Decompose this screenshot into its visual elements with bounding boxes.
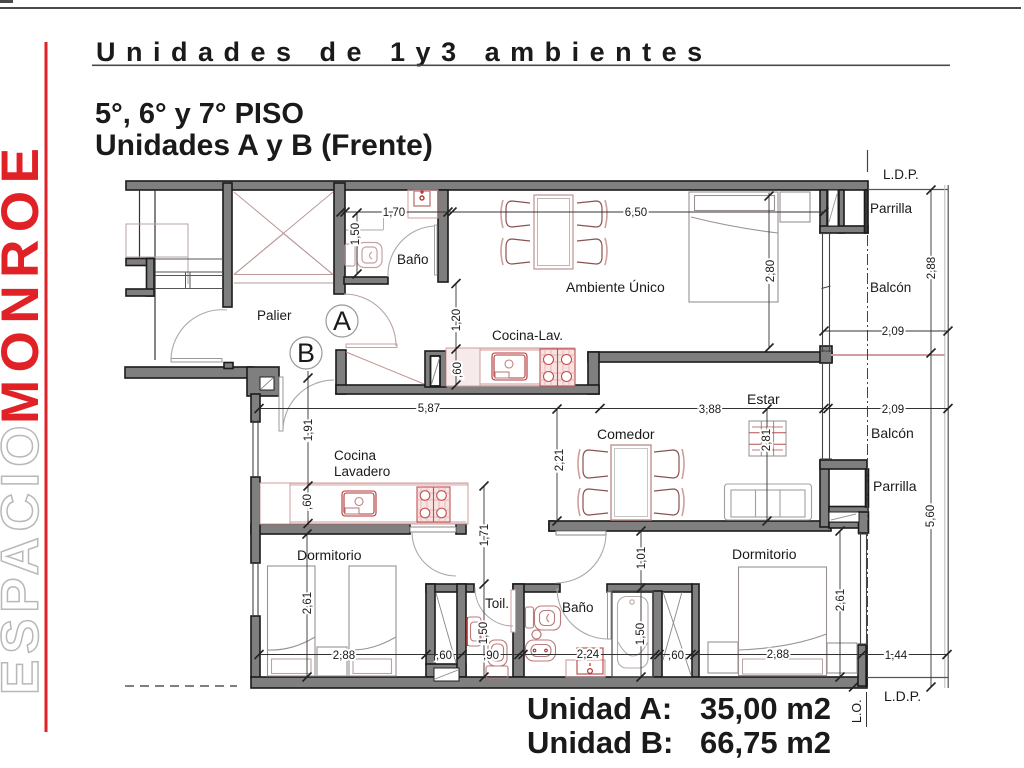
svg-text:L.D.P.: L.D.P. xyxy=(884,688,921,704)
svg-text:2,81: 2,81 xyxy=(761,429,773,451)
svg-text:3,88: 3,88 xyxy=(699,404,721,416)
svg-text:Toil.: Toil. xyxy=(485,596,509,611)
svg-text:L.O.: L.O. xyxy=(850,699,864,723)
svg-text:Palier: Palier xyxy=(257,308,292,323)
svg-text:Unidad A:: Unidad A: xyxy=(527,691,672,726)
svg-text:Estar: Estar xyxy=(747,391,780,407)
svg-text:2,88: 2,88 xyxy=(767,649,789,661)
svg-text:1,91: 1,91 xyxy=(303,419,315,441)
svg-text:2,88: 2,88 xyxy=(333,650,355,662)
svg-text:1,50: 1,50 xyxy=(478,622,490,644)
svg-text:1,50: 1,50 xyxy=(350,223,362,245)
svg-text:5,60: 5,60 xyxy=(925,505,937,527)
svg-text:L.D.P.: L.D.P. xyxy=(883,167,919,182)
svg-text:Comedor: Comedor xyxy=(597,426,655,442)
svg-text:Balcón: Balcón xyxy=(870,280,911,295)
svg-text:2,09: 2,09 xyxy=(882,326,904,338)
svg-text:Dormitorio: Dormitorio xyxy=(732,546,797,562)
svg-text:2,61: 2,61 xyxy=(302,592,314,614)
svg-text:Unidades de 1y3 ambientes: Unidades de 1y3 ambientes xyxy=(96,37,713,67)
svg-text:Dormitorio: Dormitorio xyxy=(297,547,362,563)
svg-text:Baño: Baño xyxy=(397,252,429,267)
svg-text:2,61: 2,61 xyxy=(835,589,847,611)
svg-text:Parrilla: Parrilla xyxy=(873,478,917,494)
svg-text:,90: ,90 xyxy=(483,650,499,662)
svg-text:1,01: 1,01 xyxy=(636,547,648,569)
svg-text:2,21: 2,21 xyxy=(554,449,566,471)
svg-text:1,50: 1,50 xyxy=(635,623,647,645)
svg-text:,60: ,60 xyxy=(302,494,314,510)
svg-text:2,80: 2,80 xyxy=(765,260,777,282)
svg-text:1,20: 1,20 xyxy=(451,309,463,331)
svg-text:5,87: 5,87 xyxy=(418,403,440,415)
svg-text:ESPACIO: ESPACIO xyxy=(0,420,50,695)
svg-text:1,70: 1,70 xyxy=(383,207,405,219)
svg-text:1,71: 1,71 xyxy=(479,524,491,546)
svg-text:Cocina: Cocina xyxy=(334,448,377,463)
svg-text:6,50: 6,50 xyxy=(625,207,647,219)
svg-text:,60: ,60 xyxy=(452,362,464,378)
svg-text:5°, 6° y 7° PISO: 5°, 6° y 7° PISO xyxy=(95,98,304,130)
svg-text:35,00 m2: 35,00 m2 xyxy=(700,691,831,726)
svg-text:A: A xyxy=(333,306,351,336)
svg-text:Unidad B:: Unidad B: xyxy=(527,725,673,760)
svg-text:66,75 m2: 66,75 m2 xyxy=(700,725,831,760)
svg-text:Ambiente Único: Ambiente Único xyxy=(566,279,665,295)
svg-text:B: B xyxy=(297,338,315,368)
svg-text:2,09: 2,09 xyxy=(882,404,904,416)
svg-text:Parrilla: Parrilla xyxy=(870,201,913,216)
svg-text:2,88: 2,88 xyxy=(926,257,938,279)
svg-text:Cocina-Lav.: Cocina-Lav. xyxy=(492,328,563,343)
svg-text:Unidades A y B (Frente): Unidades A y B (Frente) xyxy=(95,129,433,162)
svg-text:Lavadero: Lavadero xyxy=(334,464,390,479)
svg-text:Baño: Baño xyxy=(562,600,594,615)
svg-text:,60: ,60 xyxy=(436,650,452,662)
svg-text:,60: ,60 xyxy=(668,650,684,662)
svg-text:Balcón: Balcón xyxy=(871,425,914,441)
svg-text:1,44: 1,44 xyxy=(885,650,908,662)
svg-text:MONROE: MONROE xyxy=(0,141,50,425)
svg-text:2,24: 2,24 xyxy=(577,649,600,661)
